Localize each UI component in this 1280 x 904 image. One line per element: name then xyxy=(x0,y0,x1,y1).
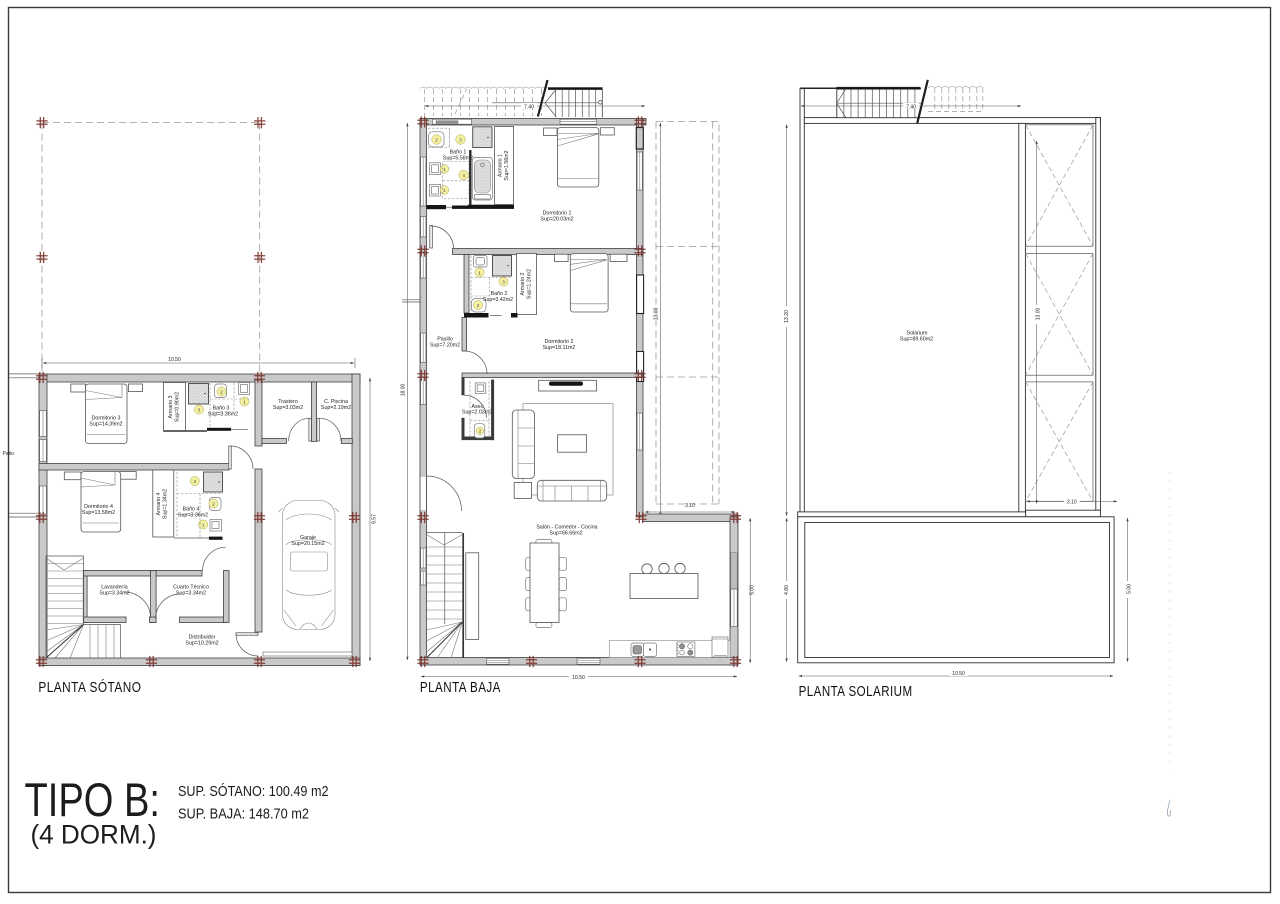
svg-text:Sup=14.39m2: Sup=14.39m2 xyxy=(89,422,122,428)
svg-text:Armario 3: Armario 3 xyxy=(168,395,174,418)
svg-text:Sup=3.03m2: Sup=3.03m2 xyxy=(273,405,303,411)
svg-text:Armario 2: Armario 2 xyxy=(520,272,526,295)
svg-text:Sup=10.29m2: Sup=10.29m2 xyxy=(185,641,218,647)
svg-text:3: 3 xyxy=(198,407,201,412)
svg-text:3.10: 3.10 xyxy=(1067,499,1077,505)
svg-text:Sup=0.90m2: Sup=0.90m2 xyxy=(175,392,181,422)
svg-text:Sup=13.58m2: Sup=13.58m2 xyxy=(82,510,115,516)
svg-text:(4 DORM.): (4 DORM.) xyxy=(31,820,157,850)
svg-text:PLANTA BAJA: PLANTA BAJA xyxy=(420,679,501,696)
svg-text:SUP. BAJA: 148.70 m2: SUP. BAJA: 148.70 m2 xyxy=(178,806,309,822)
svg-text:1: 1 xyxy=(443,167,446,172)
svg-text:Sup=1.34m2: Sup=1.34m2 xyxy=(163,489,169,519)
svg-text:Sup=20.15m2: Sup=20.15m2 xyxy=(291,541,324,547)
svg-text:Sup=1.24m2: Sup=1.24m2 xyxy=(527,269,533,299)
svg-text:18.00: 18.00 xyxy=(401,384,407,397)
svg-text:SUP. SÓTANO: 100.49 m2: SUP. SÓTANO: 100.49 m2 xyxy=(178,783,329,800)
svg-text:Patio: Patio xyxy=(3,451,15,457)
svg-text:Armario 1: Armario 1 xyxy=(498,154,504,177)
svg-text:TIPO B:: TIPO B: xyxy=(25,773,161,826)
svg-text:10.50: 10.50 xyxy=(572,675,585,681)
svg-text:Sup=3.36m2: Sup=3.36m2 xyxy=(178,513,208,519)
svg-text:PLANTA SOLARIUM: PLANTA SOLARIUM xyxy=(799,683,913,700)
svg-text:5.00: 5.00 xyxy=(750,585,756,595)
svg-text:1: 1 xyxy=(243,399,246,404)
svg-text:Sup=2.19m2: Sup=2.19m2 xyxy=(321,405,351,411)
svg-text:13.00: 13.00 xyxy=(654,308,660,321)
svg-text:Sup=89.60m2: Sup=89.60m2 xyxy=(900,337,933,343)
svg-text:3: 3 xyxy=(459,137,462,142)
svg-text:2: 2 xyxy=(479,429,482,434)
svg-text:Sup=66.66m2: Sup=66.66m2 xyxy=(549,531,582,537)
svg-text:2: 2 xyxy=(220,389,223,394)
svg-text:4.80: 4.80 xyxy=(784,585,790,595)
svg-text:7.40: 7.40 xyxy=(906,104,916,110)
svg-text:Sup=3.34m2: Sup=3.34m2 xyxy=(99,591,129,597)
svg-text:Sup=1.56m2: Sup=1.56m2 xyxy=(504,150,510,180)
svg-text:Sup=7.20m2: Sup=7.20m2 xyxy=(430,343,460,349)
svg-text:2: 2 xyxy=(435,137,438,142)
svg-text:4: 4 xyxy=(462,173,465,178)
svg-text:PLANTA SÓTANO: PLANTA SÓTANO xyxy=(38,679,141,696)
svg-text:2: 2 xyxy=(212,501,215,506)
svg-text:Sup=2.03m2: Sup=2.03m2 xyxy=(462,410,492,416)
svg-text:7.40: 7.40 xyxy=(524,104,534,110)
svg-text:Sup=5.58m2: Sup=5.58m2 xyxy=(443,155,473,161)
svg-text:13.20: 13.20 xyxy=(784,310,790,323)
svg-text:Sup=3.42m2: Sup=3.42m2 xyxy=(483,297,513,303)
svg-text:Sup=3.36m2: Sup=3.36m2 xyxy=(208,412,238,418)
svg-text:Sup=3.34m2: Sup=3.34m2 xyxy=(176,591,206,597)
svg-text:3: 3 xyxy=(194,479,197,484)
svg-text:3: 3 xyxy=(502,279,505,284)
svg-text:Sup=20.03m2: Sup=20.03m2 xyxy=(540,217,573,223)
svg-text:5.00: 5.00 xyxy=(1127,584,1133,594)
svg-text:10.50: 10.50 xyxy=(168,357,181,363)
svg-text:9.57: 9.57 xyxy=(372,514,378,524)
svg-text:2: 2 xyxy=(477,303,480,308)
svg-text:1: 1 xyxy=(202,522,205,527)
svg-text:10.50: 10.50 xyxy=(952,671,965,677)
svg-text:13.00: 13.00 xyxy=(1036,308,1042,321)
svg-text:Sup=18.11m2: Sup=18.11m2 xyxy=(543,345,576,351)
svg-text:1: 1 xyxy=(478,270,481,275)
svg-text:Armario 4: Armario 4 xyxy=(156,492,162,515)
svg-text:1: 1 xyxy=(443,188,446,193)
